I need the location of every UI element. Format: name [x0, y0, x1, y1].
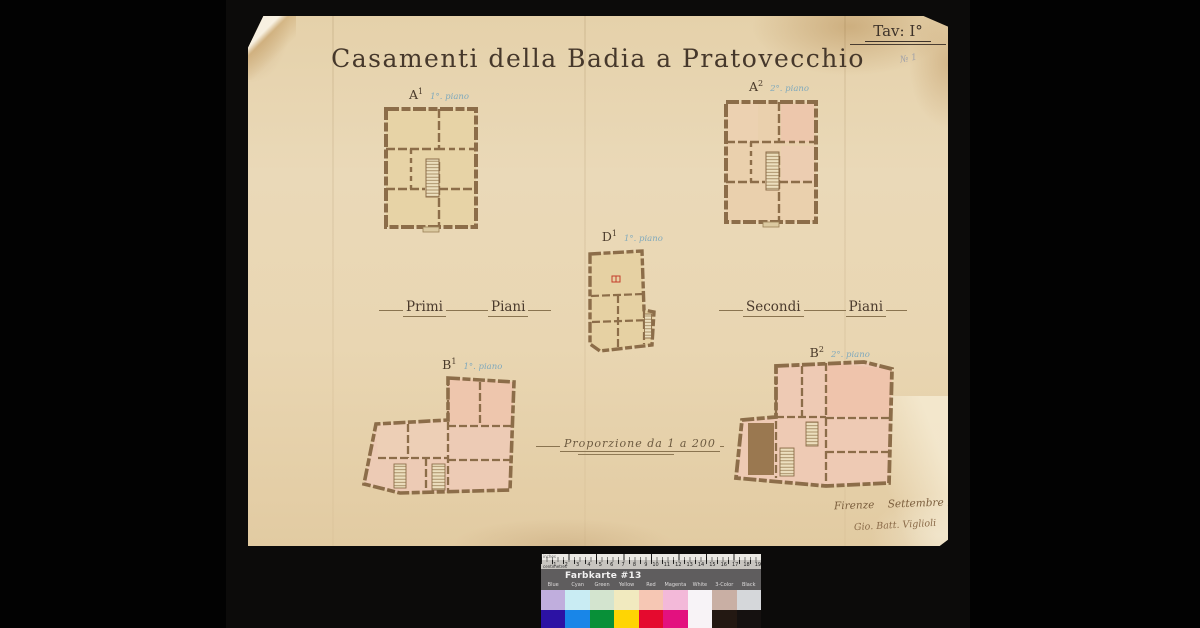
cm-number: 16 [716, 563, 727, 568]
scale-note: Proporzione da 1 a 200 [536, 432, 724, 452]
cm-number: 10 [647, 563, 658, 568]
plan-b2-label: B22°. piano [810, 345, 870, 360]
cm-number: 14 [693, 563, 704, 568]
plan-letter: A [409, 87, 418, 102]
pastel-swatch-row [541, 590, 761, 610]
swatch-label: Red [639, 582, 663, 588]
rule-line [720, 432, 724, 447]
plan-b2-drawing [706, 360, 898, 490]
rule-line [886, 296, 907, 311]
solid-swatch-cyan [565, 610, 589, 628]
plate-label: Tav: I° [846, 22, 950, 45]
plan-sup: 1 [451, 357, 456, 366]
plan-a1-drawing [381, 102, 481, 234]
swatch-label: 3-Color [712, 582, 736, 588]
solid-swatch-green [590, 610, 614, 628]
rule-line [528, 296, 551, 311]
plan-a1-label: A11°. piano [409, 87, 469, 102]
pastel-swatch-3-color [712, 590, 736, 610]
plan-sup: 1 [612, 229, 617, 238]
drawing-title: Casamenti della Badia a Pratovecchio [248, 44, 948, 73]
swatch-label: Blue [541, 582, 565, 588]
plan-sup: 2 [819, 345, 824, 354]
floor-plan-b1: B11°. piano [360, 372, 518, 496]
plan-d-drawing [580, 244, 658, 356]
scanned-drawing-image: Casamenti della Badia a Pratovecchio Tav… [0, 0, 1200, 628]
floor-plan-d: D11°. piano [580, 244, 658, 356]
primi-piani-label: PrimiPiani [379, 296, 551, 317]
cm-number: 12 [670, 563, 681, 568]
cm-number: 4 [579, 563, 590, 568]
swatch-label: Cyan [565, 582, 589, 588]
swatch-label: White [688, 582, 712, 588]
centimetres-label: centimetres [543, 565, 567, 569]
rule-line [379, 296, 403, 311]
plan-sup: 2 [758, 79, 763, 88]
plan-letter: A [749, 79, 758, 94]
plan-floor-note: 1°. piano [430, 92, 469, 102]
floor-plan-a2: A22°. piano [721, 94, 821, 230]
cm-number: 18 [738, 563, 749, 568]
cm-number: 15 [704, 563, 715, 568]
plan-d-label: D11°. piano [602, 229, 663, 244]
plan-floor-note: 2°. piano [831, 350, 870, 360]
pastel-swatch-green [590, 590, 614, 610]
ruler-centimetres: centimetres 1234567891011121314151617181… [541, 560, 761, 569]
rule-line [536, 432, 560, 447]
plate-label-text: Tav: I° [865, 22, 931, 42]
paper-crease [332, 16, 334, 546]
group-word: Primi [403, 299, 446, 317]
swatch-label: Black [737, 582, 761, 588]
solid-swatch-yellow [614, 610, 638, 628]
cm-number: 8 [625, 563, 636, 568]
rule-line [804, 296, 846, 311]
plan-b1-drawing [360, 372, 518, 496]
color-card-body: Farbkarte #13 BlueCyanGreenYellowRedMage… [541, 569, 761, 628]
solid-swatch-3-color [712, 610, 736, 628]
scale-note-rule [578, 454, 674, 455]
group-word: Secondi [743, 299, 804, 317]
scale-note-text: Proporzione da 1 a 200 [560, 437, 720, 452]
cm-number: 19 [750, 563, 761, 568]
swatch-label: Yellow [614, 582, 638, 588]
plan-b1-label: B11°. piano [442, 357, 502, 372]
solid-swatch-magenta [663, 610, 687, 628]
plan-a2-label: A22°. piano [749, 79, 809, 94]
pastel-swatch-cyan [565, 590, 589, 610]
cm-number: 6 [602, 563, 613, 568]
plan-floor-note: 1°. piano [624, 234, 663, 244]
cm-number: 9 [636, 563, 647, 568]
drawing-sheet: Casamenti della Badia a Pratovecchio Tav… [248, 16, 948, 546]
color-calibration-card: inches centimetres 123456789101112131415… [541, 554, 761, 628]
floor-plan-a1: A11°. piano [381, 102, 481, 234]
plan-letter: B [810, 345, 819, 360]
plan-floor-note: 1°. piano [463, 362, 502, 372]
plan-floor-note: 2°. piano [770, 84, 809, 94]
swatch-label: Magenta [663, 582, 687, 588]
secondi-piani-label: SecondiPiani [719, 296, 907, 317]
cm-number: 3 [568, 563, 579, 568]
plan-letter: B [442, 357, 451, 372]
color-card-title: Farbkarte #13 [541, 571, 761, 581]
pastel-swatch-magenta [663, 590, 687, 610]
pastel-swatch-blue [541, 590, 565, 610]
cm-number: 11 [659, 563, 670, 568]
cm-number: 13 [682, 563, 693, 568]
pastel-swatch-black [737, 590, 761, 610]
plan-sup: 1 [418, 87, 423, 96]
cm-number: 17 [727, 563, 738, 568]
rule-line [719, 296, 743, 311]
pastel-swatch-yellow [614, 590, 638, 610]
plan-a2-drawing [721, 94, 821, 230]
group-word: Piani [846, 299, 886, 317]
cm-number: 7 [613, 563, 624, 568]
inches-label: inches [543, 555, 556, 559]
floor-plan-b2: B22°. piano [706, 360, 898, 490]
swatch-label: Green [590, 582, 614, 588]
card-label-row: BlueCyanGreenYellowRedMagentaWhite3-Colo… [541, 581, 761, 590]
pastel-swatch-white [688, 590, 712, 610]
solid-swatch-white [688, 610, 712, 628]
cm-numbers: 12345678910111213141516171819 [545, 563, 761, 568]
group-word: Piani [488, 299, 528, 317]
pastel-swatch-red [639, 590, 663, 610]
solid-swatch-black [737, 610, 761, 628]
cm-number: 5 [591, 563, 602, 568]
solid-swatch-red [639, 610, 663, 628]
solid-swatch-row [541, 610, 761, 628]
plan-letter: D [602, 229, 612, 244]
rule-line [446, 296, 488, 311]
solid-swatch-blue [541, 610, 565, 628]
plate-label-rule [850, 44, 946, 45]
